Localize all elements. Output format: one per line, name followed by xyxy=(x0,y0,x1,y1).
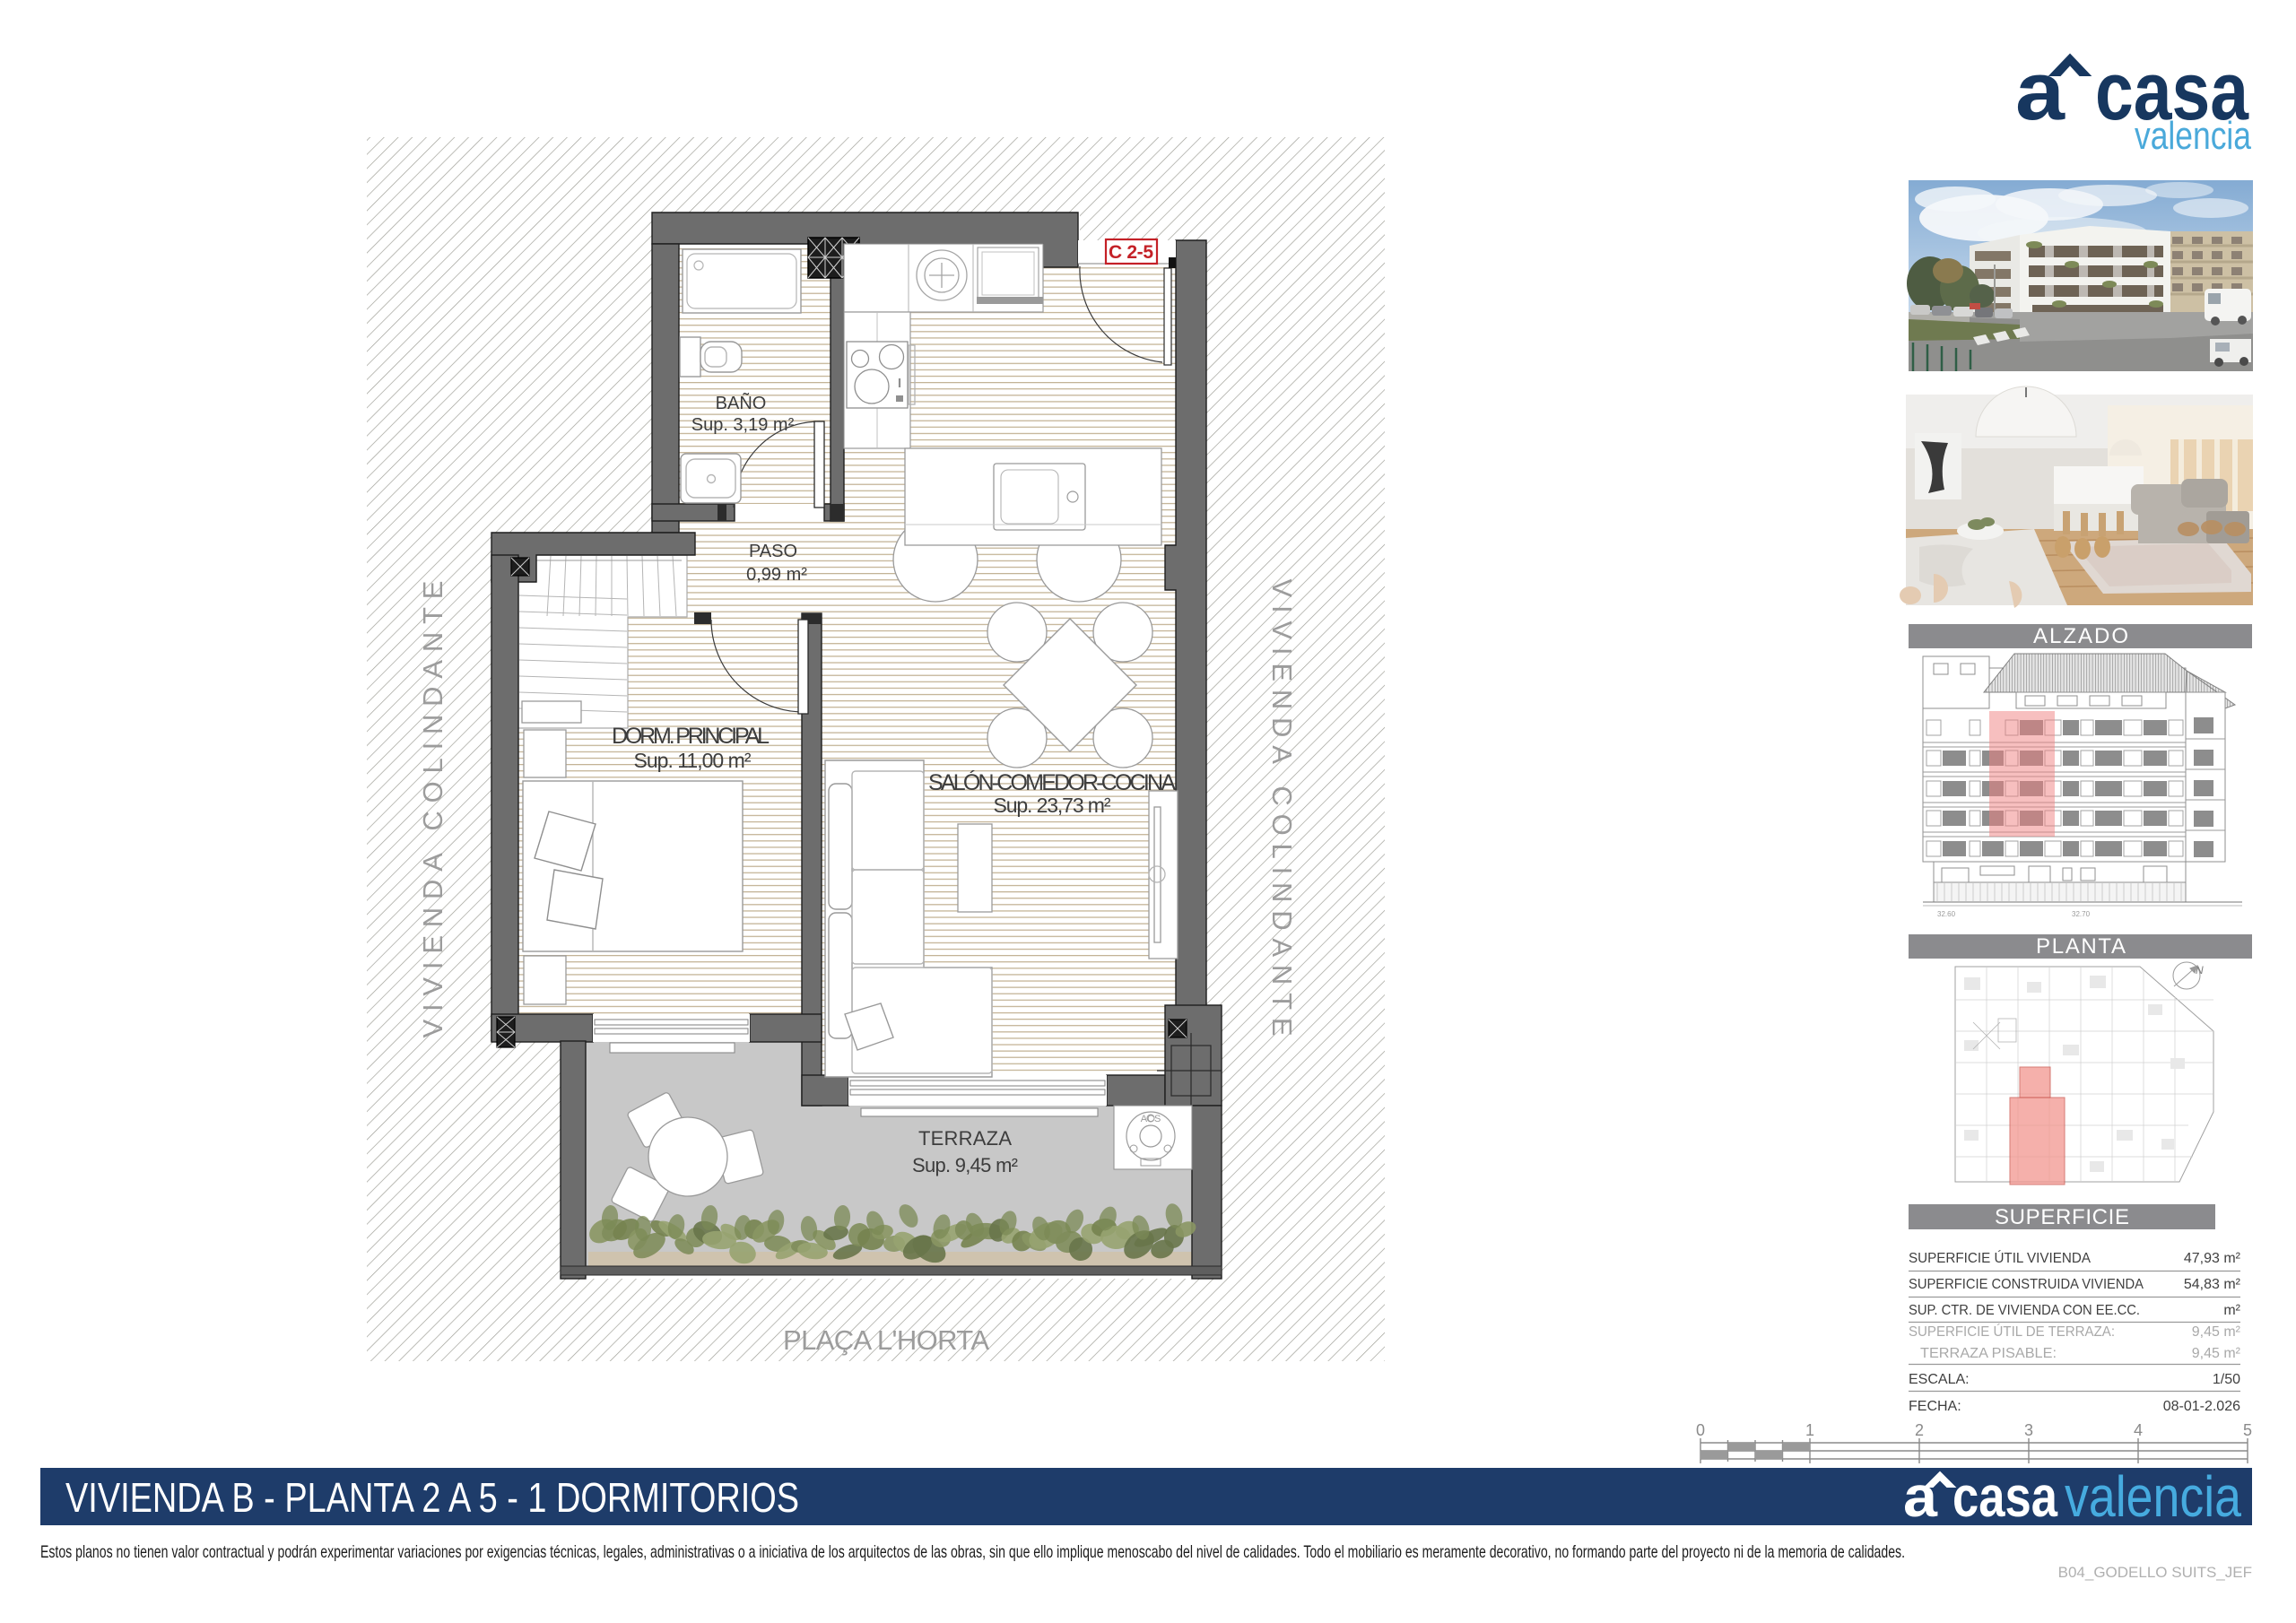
svg-text:9,45 m²: 9,45 m² xyxy=(2192,1346,2241,1361)
svg-text:1/50: 1/50 xyxy=(2213,1372,2240,1387)
svg-text:VIVIENDA COLINDANTE: VIVIENDA COLINDANTE xyxy=(417,577,448,1038)
svg-text:FECHA:: FECHA: xyxy=(1909,1399,1961,1414)
svg-text:0: 0 xyxy=(1696,1421,1705,1439)
svg-text:valencia: valencia xyxy=(2135,114,2251,158)
svg-text:valencia: valencia xyxy=(2065,1464,2241,1529)
svg-text:ALZADO: ALZADO xyxy=(2033,624,2128,648)
svg-text:casa: casa xyxy=(1952,1464,2057,1529)
svg-text:SUPERFICIE CONSTRUIDA VIVIENDA: SUPERFICIE CONSTRUIDA VIVIENDA xyxy=(1909,1277,2144,1292)
svg-text:0,99 m²: 0,99 m² xyxy=(746,565,807,585)
svg-text:SALÓN-COMEDOR-COCINA: SALÓN-COMEDOR-COCINA xyxy=(928,769,1176,795)
svg-text:32.60: 32.60 xyxy=(1937,910,1956,918)
svg-text:5: 5 xyxy=(2243,1421,2252,1439)
svg-text:PLAÇA L'HORTA: PLAÇA L'HORTA xyxy=(783,1324,989,1356)
svg-text:N: N xyxy=(2196,964,2204,976)
svg-text:VIVIENDA B - PLANTA 2 A 5 - 1: VIVIENDA B - PLANTA 2 A 5 - 1 DORMITORIO… xyxy=(65,1474,799,1521)
svg-text:Sup. 3,19 m²: Sup. 3,19 m² xyxy=(691,415,795,435)
svg-text:08-01-2.026: 08-01-2.026 xyxy=(2163,1399,2240,1414)
svg-text:2: 2 xyxy=(1915,1421,1924,1439)
svg-text:1: 1 xyxy=(1805,1421,1814,1439)
svg-text:B04_GODELLO SUITS_JEF: B04_GODELLO SUITS_JEF xyxy=(2058,1564,2252,1581)
svg-text:C 2-5: C 2-5 xyxy=(1109,242,1153,263)
svg-text:9,45 m²: 9,45 m² xyxy=(2192,1324,2241,1340)
svg-text:SUPERFICIE: SUPERFICIE xyxy=(1995,1205,2129,1229)
svg-text:3: 3 xyxy=(2024,1421,2033,1439)
svg-text:PLANTA: PLANTA xyxy=(2036,934,2126,959)
svg-text:BAÑO: BAÑO xyxy=(716,392,767,413)
svg-text:a: a xyxy=(2015,46,2066,137)
svg-text:Sup. 23,73 m²: Sup. 23,73 m² xyxy=(994,794,1111,817)
svg-text:SUP. CTR. DE VIVIENDA CON EE.C: SUP. CTR. DE VIVIENDA CON EE.CC. xyxy=(1909,1303,2140,1318)
svg-text:m²: m² xyxy=(2223,1303,2240,1318)
svg-text:Estos planos no tienen valor c: Estos planos no tienen valor contractual… xyxy=(40,1542,1905,1562)
svg-text:SUPERFICIE ÚTIL VIVIENDA: SUPERFICIE ÚTIL VIVIENDA xyxy=(1909,1249,2091,1266)
svg-text:Sup. 11,00 m²: Sup. 11,00 m² xyxy=(634,749,752,772)
svg-text:PASO: PASO xyxy=(749,542,797,561)
svg-text:ESCALA:: ESCALA: xyxy=(1909,1372,1970,1387)
svg-text:32.70: 32.70 xyxy=(2072,910,2091,918)
svg-text:54,83 m²: 54,83 m² xyxy=(2184,1277,2241,1292)
svg-text:DORM. PRINCIPAL: DORM. PRINCIPAL xyxy=(612,724,770,749)
svg-text:TERRAZA PISABLE:: TERRAZA PISABLE: xyxy=(1920,1346,2057,1361)
svg-text:47,93 m²: 47,93 m² xyxy=(2184,1251,2241,1266)
svg-text:4: 4 xyxy=(2134,1421,2143,1439)
svg-text:TERRAZA: TERRAZA xyxy=(918,1127,1012,1150)
svg-text:ACS: ACS xyxy=(1141,1114,1161,1124)
svg-text:SUPERFICIE ÚTIL DE TERRAZA:: SUPERFICIE ÚTIL DE TERRAZA: xyxy=(1909,1323,2115,1340)
svg-text:Sup. 9,45 m²: Sup. 9,45 m² xyxy=(912,1154,1018,1176)
svg-text:a: a xyxy=(1903,1464,1937,1529)
svg-text:VIVIENDA COLINDANTE: VIVIENDA COLINDANTE xyxy=(1266,579,1298,1041)
